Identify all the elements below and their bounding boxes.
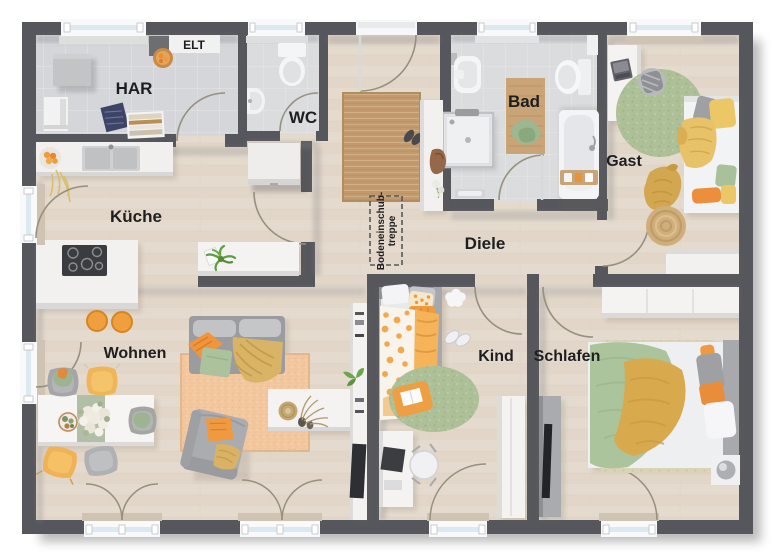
svg-text:Schlafen: Schlafen [534,348,601,365]
svg-text:Kind: Kind [478,348,514,365]
svg-text:Bodeneinschub-: Bodeneinschub- [376,192,387,270]
svg-text:Bad: Bad [508,92,540,111]
svg-text:Küche: Küche [110,207,162,226]
svg-text:Diele: Diele [465,234,506,253]
svg-text:treppe: treppe [387,215,398,246]
svg-text:HAR: HAR [116,79,153,98]
svg-text:Gast: Gast [606,153,642,170]
svg-text:WC: WC [289,108,317,127]
svg-text:Wohnen: Wohnen [104,345,167,362]
svg-text:ELT: ELT [183,38,205,52]
